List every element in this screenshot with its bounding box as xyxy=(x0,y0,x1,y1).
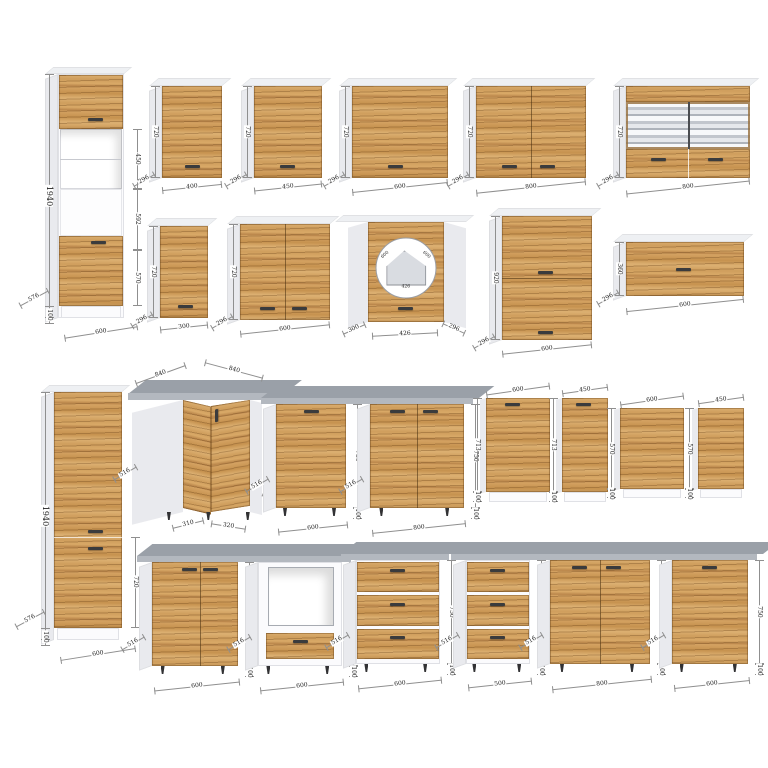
door-gap xyxy=(54,537,122,538)
dim-tick xyxy=(436,329,437,336)
countertop-edge xyxy=(128,393,278,400)
dim-tick xyxy=(468,684,470,691)
dim-label: 800 xyxy=(595,680,609,687)
dim-tick xyxy=(41,628,50,629)
dim-tick xyxy=(590,341,592,348)
dim-label: 300 xyxy=(177,323,191,330)
dim-tick xyxy=(202,517,205,524)
dim-tick xyxy=(244,526,246,533)
plinth xyxy=(564,492,605,502)
dim-label: 296 xyxy=(215,316,230,328)
dimension: 592 xyxy=(132,189,142,250)
door-gap xyxy=(502,278,592,279)
cabinet-front xyxy=(502,216,592,340)
dim-tick xyxy=(341,86,350,87)
dim-tick xyxy=(243,86,252,87)
dim-tick xyxy=(131,537,140,538)
dw-panel-450-570: 450570100 xyxy=(698,408,744,498)
dim-label: 713 xyxy=(474,438,480,451)
glass-divider xyxy=(688,102,690,149)
handle xyxy=(505,403,520,406)
dim-tick xyxy=(184,362,187,369)
panel-front xyxy=(620,408,684,489)
wall-600: 720600296 xyxy=(352,86,448,178)
handle xyxy=(538,331,553,334)
handle xyxy=(88,530,103,533)
dim-tick xyxy=(615,86,624,87)
cabinet-front xyxy=(352,86,448,178)
dim-label: 100 xyxy=(474,490,480,503)
dim-tick xyxy=(607,408,616,409)
dim-label: 600 xyxy=(511,386,525,394)
dim-tick xyxy=(221,181,223,188)
dim-tick xyxy=(650,676,652,683)
dim-label: 600 xyxy=(645,396,659,404)
dim-tick xyxy=(372,530,374,537)
dim-label: 450 xyxy=(281,183,295,190)
catalog-canvas: 1940450592570100576600720400296720450296… xyxy=(0,0,768,768)
top-panel xyxy=(339,78,458,86)
glass-header xyxy=(626,86,750,102)
top-panel xyxy=(45,67,132,74)
plinth xyxy=(61,306,120,318)
dim-tick xyxy=(238,679,240,686)
door-gap xyxy=(200,562,201,666)
dim-label: 920 xyxy=(492,271,498,284)
dimension: 800 xyxy=(476,177,586,196)
dim-label: 600 xyxy=(678,301,692,308)
cabinet-front: 600600426 xyxy=(368,222,444,322)
dim-label: 296 xyxy=(229,174,244,186)
dim-tick xyxy=(682,393,684,400)
cabinet-front xyxy=(276,404,346,508)
dim-label: 600 xyxy=(278,325,292,332)
dim-tick xyxy=(476,190,478,197)
side-panel xyxy=(139,562,152,671)
handle xyxy=(572,566,587,569)
dimension: 400 xyxy=(162,180,223,194)
door-gap xyxy=(417,404,418,508)
dimension: 450 xyxy=(698,393,745,407)
dim-label: 600 xyxy=(306,524,320,531)
bottom-door xyxy=(59,236,123,306)
handle xyxy=(540,165,555,168)
drawer-front xyxy=(467,562,529,592)
dim-label: 450 xyxy=(714,396,728,404)
handle xyxy=(490,569,505,572)
cabinet-front xyxy=(258,562,342,666)
dimension: 800 xyxy=(372,519,466,537)
side-panel-right xyxy=(444,222,466,328)
dim-tick xyxy=(278,529,280,536)
dim-tick xyxy=(41,645,50,646)
dw-panel-600-713: 600713100 xyxy=(486,398,550,502)
base-600-1d: 750100516600 xyxy=(672,560,748,664)
dimension: 600 xyxy=(154,678,240,695)
handle xyxy=(576,403,591,406)
dim-label: 570 xyxy=(134,271,140,284)
dim-label: 100 xyxy=(686,487,692,500)
dim-tick xyxy=(45,306,54,307)
handle xyxy=(260,307,275,310)
leg xyxy=(206,512,210,520)
dim-label: 713 xyxy=(550,438,556,451)
dim-label: 600 xyxy=(540,345,554,352)
dim-tick xyxy=(748,178,750,185)
dim-tick xyxy=(260,687,262,694)
handle xyxy=(702,566,717,569)
cabinet-front xyxy=(672,560,748,664)
leg xyxy=(517,664,521,672)
plan-label: 600 xyxy=(381,252,390,261)
dim-label: 600 xyxy=(295,682,309,689)
dimension: 600 xyxy=(486,382,550,399)
shelf-line xyxy=(60,159,122,160)
plan-view-inset: 600600426 xyxy=(375,238,436,299)
tall-oven-600: 1940450592570100576600 xyxy=(58,74,124,318)
handle xyxy=(708,158,723,161)
cabinet-front xyxy=(54,392,122,628)
dimension: 450 xyxy=(254,179,322,194)
dimension: 1940 xyxy=(44,74,54,318)
countertop xyxy=(355,386,494,398)
handle xyxy=(388,165,403,168)
dim-tick xyxy=(748,677,750,684)
leg xyxy=(560,664,564,672)
side-panel xyxy=(132,400,183,525)
leg xyxy=(379,508,383,516)
dimension: 100 xyxy=(754,664,764,675)
side-panel xyxy=(245,562,258,671)
handle xyxy=(423,410,438,413)
drawer-front xyxy=(357,629,439,659)
panel-front xyxy=(562,398,608,492)
dim-tick xyxy=(473,398,482,399)
dim-label: 296 xyxy=(601,292,616,304)
dim-tick xyxy=(229,224,238,225)
dimension: 600 xyxy=(674,676,750,692)
dimension: 600 xyxy=(260,678,344,695)
dim-tick xyxy=(162,187,164,194)
dimension: 310 xyxy=(171,516,204,532)
drawer-front xyxy=(357,562,439,592)
door-gap xyxy=(600,560,601,664)
dim-tick xyxy=(755,560,764,561)
countertop xyxy=(341,542,470,554)
dimension: 100 xyxy=(44,306,54,324)
dim-label: 600 xyxy=(393,680,407,687)
leg xyxy=(325,666,329,674)
dim-tick xyxy=(742,394,744,401)
plinth xyxy=(57,628,118,640)
dim-tick xyxy=(171,525,174,532)
dim-tick xyxy=(371,333,372,340)
dim-label: 570 xyxy=(686,442,692,455)
dim-label: 296 xyxy=(601,174,616,186)
top-door xyxy=(59,75,123,129)
dimension: 600 xyxy=(240,320,330,337)
dim-label: 600 xyxy=(393,183,407,190)
handle xyxy=(280,165,295,168)
dimension: 600 xyxy=(358,676,442,693)
top-panel xyxy=(227,216,340,224)
dim-tick xyxy=(440,677,442,684)
handle xyxy=(91,241,106,244)
dim-label: 400 xyxy=(185,183,199,190)
wall-600-tall: 920600296 xyxy=(502,216,592,340)
side-panel xyxy=(263,404,276,513)
dim-tick xyxy=(685,408,694,409)
plinth xyxy=(700,489,741,498)
dim-label: 320 xyxy=(221,522,235,530)
panel-front xyxy=(698,408,744,489)
dimension: 320 xyxy=(211,519,247,532)
dim-label: 296 xyxy=(451,174,466,186)
wall-600-flap: 360600296 xyxy=(626,242,744,296)
handle xyxy=(398,307,413,310)
dim-label: 100 xyxy=(550,490,556,503)
dim-tick xyxy=(347,521,349,528)
dim-tick xyxy=(657,560,666,561)
handle xyxy=(390,636,405,639)
dim-tick xyxy=(615,242,624,243)
dimension: 100 xyxy=(472,492,482,502)
drawer-front xyxy=(467,595,529,625)
dim-label: 100 xyxy=(42,630,48,643)
wall-800-2d: 720800296 xyxy=(476,86,586,178)
dimension: 600 xyxy=(502,340,592,357)
dim-label: 720 xyxy=(132,576,138,589)
dim-tick xyxy=(342,679,344,686)
cabinet-front xyxy=(550,560,650,664)
dim-tick xyxy=(491,216,500,217)
handle xyxy=(606,566,621,569)
dw-panel-450-713: 450713100 xyxy=(562,398,608,502)
dim-label: 296 xyxy=(327,174,342,186)
handle xyxy=(651,158,666,161)
leg xyxy=(445,508,449,516)
dim-label: 310 xyxy=(180,519,195,528)
cabinet-front xyxy=(370,404,464,508)
top-panel xyxy=(241,78,332,86)
dim-label: 100 xyxy=(350,665,356,678)
dim-tick xyxy=(502,351,504,358)
dim-label: 720 xyxy=(152,125,158,138)
dim-tick xyxy=(352,189,354,196)
dim-tick xyxy=(133,129,142,130)
base-800: 750100516800 xyxy=(370,404,464,508)
dim-label: 600 xyxy=(705,680,719,687)
oven-cavity xyxy=(268,567,334,626)
dim-label: 1940 xyxy=(45,185,53,207)
dim-label: 500 xyxy=(493,680,507,687)
dimension: 500 xyxy=(468,677,532,692)
base-600: 750100516600 xyxy=(276,404,346,508)
dimension: 600 xyxy=(352,178,448,196)
dim-label: 100 xyxy=(608,487,614,500)
cabinet-front xyxy=(160,226,208,318)
dim-label: 800 xyxy=(524,183,538,190)
dim-tick xyxy=(549,398,558,399)
glass-doors xyxy=(626,102,750,149)
dim-tick xyxy=(154,687,156,694)
handle xyxy=(178,305,193,308)
dimension: 600 xyxy=(626,295,744,315)
dim-tick xyxy=(742,296,744,303)
leg xyxy=(167,512,171,520)
dim-tick xyxy=(674,685,676,692)
dim-label: 570 xyxy=(608,442,614,455)
side-panel xyxy=(537,560,550,669)
wall-300: 720300296 xyxy=(160,226,208,318)
door-gap xyxy=(285,224,286,320)
dim-tick xyxy=(151,86,160,87)
cabinet-front xyxy=(476,86,586,178)
leg xyxy=(332,508,336,516)
dimension: 100 xyxy=(548,492,558,502)
dim-label: 100 xyxy=(756,663,762,676)
handle xyxy=(304,410,319,413)
base-600-drawers: 750100516600 xyxy=(356,560,440,664)
dimension: 570 xyxy=(132,250,142,306)
handle xyxy=(390,569,405,572)
dim-label: 296 xyxy=(477,336,492,348)
dimension: 720 xyxy=(242,86,252,178)
dimension: 426 xyxy=(371,328,437,339)
dim-label: 1940 xyxy=(41,505,49,527)
top-panel xyxy=(489,208,602,216)
dim-tick xyxy=(358,685,360,692)
top-panel xyxy=(613,234,754,242)
cabinet-front xyxy=(626,242,744,296)
handle xyxy=(292,307,307,310)
dim-tick xyxy=(626,190,628,197)
dim-tick xyxy=(149,226,158,227)
dimension: 100 xyxy=(40,628,50,646)
handle xyxy=(390,603,405,606)
handle xyxy=(185,165,200,168)
wall-corner-600: 600600426300426296 xyxy=(348,222,466,322)
dim-label: 592 xyxy=(134,212,140,225)
dimension: 713 xyxy=(548,398,558,492)
dimension: 920 xyxy=(490,216,500,340)
dim-tick xyxy=(462,330,466,337)
cabinet-front xyxy=(152,562,238,666)
leg xyxy=(266,666,270,674)
dimension: 100 xyxy=(348,666,358,677)
drawer-front xyxy=(357,595,439,625)
dim-tick xyxy=(133,305,142,306)
dim-label: 600 xyxy=(91,650,105,658)
leg xyxy=(283,508,287,516)
leg xyxy=(246,512,250,520)
dimension: 300 xyxy=(160,321,209,334)
dimension: 720 xyxy=(150,86,160,178)
base-corner-840: 840840516310320516 xyxy=(146,400,262,512)
dim-tick xyxy=(531,678,533,685)
leg xyxy=(630,664,634,672)
panel-front xyxy=(486,398,550,492)
leg xyxy=(472,664,476,672)
side-panel xyxy=(343,560,356,669)
dimension: 800 xyxy=(626,177,750,198)
top-panel xyxy=(613,78,760,86)
tall-pantry-600: 1940720100576600 xyxy=(54,392,122,640)
wall-600-2d: 720600296 xyxy=(240,224,330,320)
handle xyxy=(215,409,218,422)
dim-label: 360 xyxy=(616,262,622,275)
cabinet-front xyxy=(162,86,222,178)
dim-label: 426 xyxy=(398,331,412,338)
plan-label: 426 xyxy=(402,286,411,291)
dim-label: 600 xyxy=(190,682,204,689)
plan-shape xyxy=(387,250,427,285)
plinth xyxy=(489,492,547,502)
glass-drawers xyxy=(626,149,750,178)
top-panel xyxy=(463,78,596,86)
handle xyxy=(88,118,103,121)
dim-tick xyxy=(45,323,54,324)
countertop xyxy=(657,542,768,554)
dim-label: 720 xyxy=(466,125,472,138)
handle xyxy=(88,547,103,550)
dimension: 570 xyxy=(606,408,616,489)
dim-label: 720 xyxy=(244,125,250,138)
side-panel xyxy=(453,560,466,669)
dimension: 100 xyxy=(684,489,694,498)
dimension: 600 xyxy=(64,322,138,341)
dim-tick xyxy=(160,326,162,333)
top-panel xyxy=(41,385,130,392)
handle xyxy=(538,271,553,274)
handle xyxy=(293,640,308,643)
dim-label: 450 xyxy=(134,152,140,165)
dim-label: 750 xyxy=(756,605,762,618)
drawer-gap xyxy=(688,149,689,178)
dim-tick xyxy=(328,321,330,328)
top-panel xyxy=(149,78,232,86)
corner-front-right xyxy=(211,400,250,513)
dim-label: 720 xyxy=(150,265,156,278)
dimension: 800 xyxy=(552,675,652,693)
dimension: 100 xyxy=(606,489,616,498)
door-gap xyxy=(531,86,532,178)
handle xyxy=(390,410,405,413)
dimension: 600 xyxy=(620,392,684,409)
dimension: 100 xyxy=(470,508,480,519)
top-panel xyxy=(147,218,218,226)
dim-label: 720 xyxy=(230,265,236,278)
base-800-2d: 750100516800 xyxy=(550,560,650,664)
dim-tick xyxy=(447,560,456,561)
dimension: 570 xyxy=(684,408,694,489)
dimension: 720 xyxy=(464,86,474,178)
dim-tick xyxy=(584,178,586,185)
leg xyxy=(680,664,684,672)
leg xyxy=(364,664,368,672)
cabinet-front xyxy=(254,86,322,178)
dim-tick xyxy=(465,86,474,87)
leg xyxy=(221,666,225,674)
mid-section xyxy=(60,189,122,237)
dim-label: 296 xyxy=(135,314,150,326)
dim-label: 800 xyxy=(412,524,426,531)
cabinet-front xyxy=(626,86,750,178)
dimension: 720 xyxy=(228,224,238,320)
handle xyxy=(502,165,517,168)
dim-label: 720 xyxy=(342,125,348,138)
dim-label: 576 xyxy=(23,613,38,625)
